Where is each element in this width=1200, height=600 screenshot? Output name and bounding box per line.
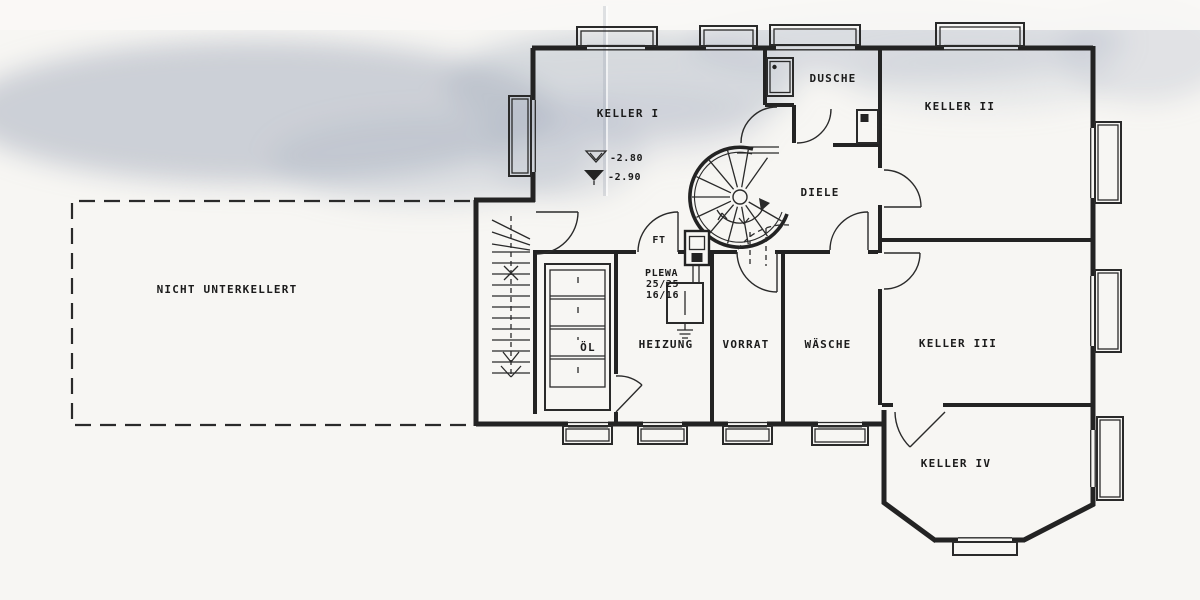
room-label-waesche: WÄSCHE xyxy=(805,337,852,351)
nicht-unterkellert-outline xyxy=(72,201,470,425)
room-label-keller-iv: KELLER IV xyxy=(921,457,991,470)
window-well-right-2 xyxy=(1091,270,1121,352)
level-value-upper: -2.80 xyxy=(610,153,643,164)
shaft-block xyxy=(857,110,878,143)
door-diele-waesche xyxy=(830,212,868,250)
paper-crease xyxy=(603,6,608,196)
ground-symbol xyxy=(677,323,693,338)
flue-label: FT xyxy=(652,235,665,246)
room-label-diele: DIELE xyxy=(800,186,839,199)
paper-top-edge xyxy=(0,0,1200,30)
room-label-dusche: DUSCHE xyxy=(810,72,857,85)
window-well-bottom-2 xyxy=(638,423,687,445)
area-note-label: NICHT UNTERKELLERT xyxy=(157,283,298,296)
door-dusche xyxy=(797,109,831,143)
window-well-bottom-3 xyxy=(723,423,772,445)
chimney-block xyxy=(685,231,709,265)
door-oel-heizung xyxy=(616,376,642,412)
oil-tanks xyxy=(545,264,610,410)
room-label-keller-ii: KELLER II xyxy=(925,100,995,113)
door-diele-vorrat xyxy=(737,252,777,292)
room-label-keller-i: KELLER I xyxy=(597,107,660,120)
drain-dot xyxy=(772,65,776,69)
window-well-bottom-1 xyxy=(563,423,612,445)
level-value-lower: -2.90 xyxy=(608,172,641,183)
window-well-right-3 xyxy=(1091,417,1123,500)
door-diele-keller-ii xyxy=(884,170,921,207)
room-label-keller-iii: KELLER III xyxy=(919,337,997,350)
door-keller-iii-keller-iv xyxy=(895,412,945,447)
straight-staircase xyxy=(492,216,530,378)
room-label-oel: ÖL xyxy=(580,340,596,354)
door-waesche-keller-iii xyxy=(884,253,920,289)
floor-plan-canvas: KELLER I KELLER II KELLER III KELLER IV … xyxy=(0,0,1200,600)
scanned-floor-plan: KELLER I KELLER II KELLER III KELLER IV … xyxy=(0,0,1200,600)
door-keller-i-heizung xyxy=(638,212,678,252)
room-label-vorrat: VORRAT xyxy=(723,338,770,351)
room-label-heizung: HEIZUNG xyxy=(639,338,694,351)
chimney-brand-label: PLEWA xyxy=(645,268,678,279)
window-well-bay xyxy=(953,538,1017,555)
window-well-bottom-4 xyxy=(812,423,868,446)
chimney-size-bottom: 16/16 xyxy=(646,290,679,301)
door-stairs-keller-i xyxy=(536,212,578,254)
window-well-right-1 xyxy=(1091,122,1121,203)
chimney-size-top: 25/25 xyxy=(646,279,679,290)
